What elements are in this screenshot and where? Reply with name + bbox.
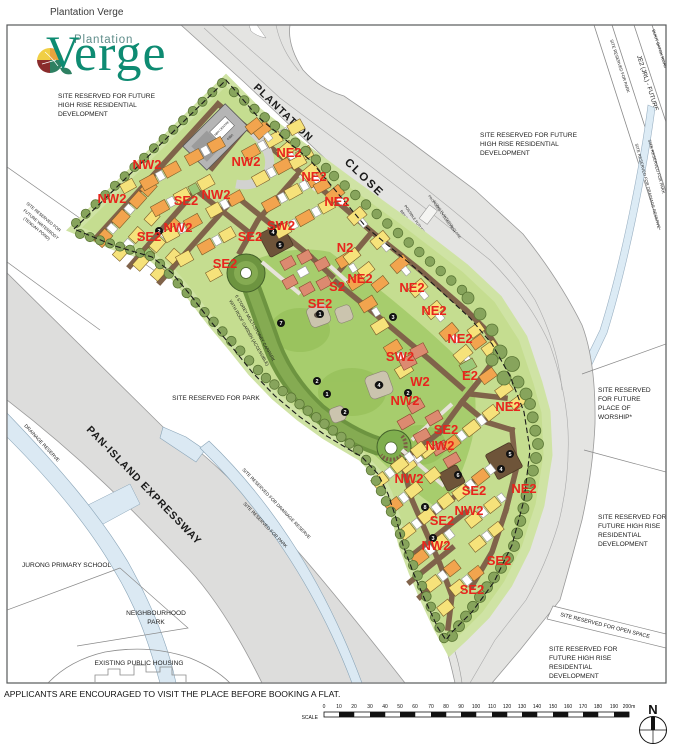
svg-text:N2: N2 [337,240,354,255]
svg-text:NE2: NE2 [399,280,424,295]
svg-text:SITE RESERVED FOR FUTURE: SITE RESERVED FOR FUTURE [480,132,578,139]
svg-text:SW2: SW2 [267,218,295,233]
svg-text:NE2: NE2 [511,481,536,496]
svg-text:NW2: NW2 [133,157,162,172]
svg-text:NW2: NW2 [391,393,420,408]
svg-text:NW2: NW2 [422,538,451,553]
svg-text:JURONG PRIMARY SCHOOL: JURONG PRIMARY SCHOOL [22,562,111,569]
svg-text:NW2: NW2 [232,154,261,169]
svg-text:FUTURE HIGH RISE: FUTURE HIGH RISE [549,655,612,662]
svg-text:SE2: SE2 [137,229,162,244]
svg-text:140: 140 [533,704,542,710]
svg-text:190: 190 [610,704,619,710]
svg-text:60: 60 [412,704,418,710]
svg-text:SE2: SE2 [487,553,512,568]
svg-text:3: 3 [391,315,394,321]
svg-text:NW2: NW2 [426,438,455,453]
svg-text:2: 2 [315,379,318,385]
svg-text:NW2: NW2 [395,471,424,486]
svg-text:SITE RESERVED FOR FUTURE: SITE RESERVED FOR FUTURE [58,93,156,100]
svg-text:70: 70 [428,704,434,710]
svg-text:DEVELOPMENT: DEVELOPMENT [549,673,599,680]
svg-text:DEVELOPMENT: DEVELOPMENT [598,541,648,548]
svg-text:RESIDENTIAL: RESIDENTIAL [598,532,642,539]
svg-text:erge: erge [74,25,167,82]
svg-text:NW2: NW2 [202,187,231,202]
svg-text:5: 5 [508,452,511,458]
svg-text:FUTURE HIGH RISE: FUTURE HIGH RISE [598,523,661,530]
svg-text:EXISTING PUBLIC HOUSING: EXISTING PUBLIC HOUSING [94,660,183,667]
svg-text:130: 130 [518,704,527,710]
svg-text:PLACE OF: PLACE OF [598,405,631,412]
svg-text:40: 40 [382,704,388,710]
svg-text:NEIGHBOURHOOD: NEIGHBOURHOOD [126,610,186,617]
svg-text:SE2: SE2 [462,483,487,498]
svg-text:170: 170 [579,704,588,710]
svg-text:80: 80 [443,704,449,710]
svg-text:W2: W2 [410,374,430,389]
svg-text:S2: S2 [329,279,345,294]
svg-text:FOR FUTURE: FOR FUTURE [598,396,641,403]
svg-text:100: 100 [472,704,481,710]
svg-text:NW2: NW2 [98,191,127,206]
svg-text:180: 180 [594,704,603,710]
svg-text:SE2: SE2 [430,513,455,528]
svg-text:20: 20 [351,704,357,710]
svg-text:30: 30 [367,704,373,710]
svg-text:200m: 200m [623,704,636,710]
svg-text:SITE RESERVED: SITE RESERVED [598,387,651,394]
svg-text:PARK: PARK [147,619,165,626]
svg-text:SE2: SE2 [238,229,263,244]
svg-text:HIGH RISE RESIDENTIAL: HIGH RISE RESIDENTIAL [480,141,559,148]
svg-text:SCALE: SCALE [302,715,319,721]
svg-text:NE2: NE2 [347,271,372,286]
svg-text:NE2: NE2 [324,194,349,209]
svg-text:SITE RESERVED FOR: SITE RESERVED FOR [549,646,618,653]
svg-text:N: N [648,702,657,717]
svg-text:NE2: NE2 [301,169,326,184]
svg-text:2: 2 [343,410,346,416]
svg-text:160: 160 [564,704,573,710]
svg-text:NW2: NW2 [455,503,484,518]
svg-text:NE2: NE2 [495,399,520,414]
svg-text:90: 90 [458,704,464,710]
svg-text:SE2: SE2 [174,193,199,208]
svg-text:E2: E2 [462,368,478,383]
svg-text:7: 7 [279,321,282,327]
svg-text:RESIDENTIAL: RESIDENTIAL [549,664,593,671]
svg-text:1: 1 [318,312,321,318]
svg-text:SE2: SE2 [308,296,333,311]
svg-text:DEVELOPMENT: DEVELOPMENT [480,150,530,157]
svg-text:SE2: SE2 [460,582,485,597]
svg-text:HIGH RISE RESIDENTIAL: HIGH RISE RESIDENTIAL [58,102,137,109]
svg-text:SE2: SE2 [213,256,238,271]
svg-text:5: 5 [278,243,281,249]
svg-text:DEVELOPMENT: DEVELOPMENT [58,111,108,118]
svg-text:SE2: SE2 [434,422,459,437]
svg-text:110: 110 [488,704,496,710]
svg-text:Plantation Verge: Plantation Verge [50,7,124,18]
svg-text:50: 50 [397,704,403,710]
svg-text:WORSHIP*: WORSHIP* [598,414,633,421]
svg-text:NE2: NE2 [421,303,446,318]
svg-text:SITE RESERVED FOR: SITE RESERVED FOR [598,514,667,521]
svg-text:NW2: NW2 [164,220,193,235]
svg-text:10: 10 [336,704,342,710]
svg-text:APPLICANTS ARE ENCOURAGED TO V: APPLICANTS ARE ENCOURAGED TO VISIT THE P… [4,689,340,699]
svg-text:NE2: NE2 [276,145,301,160]
svg-text:120: 120 [503,704,512,710]
svg-text:0: 0 [323,704,326,710]
svg-text:SITE RESERVED FOR PARK: SITE RESERVED FOR PARK [172,395,260,402]
svg-text:1: 1 [325,392,328,398]
svg-text:150: 150 [549,704,558,710]
svg-text:NE2: NE2 [447,331,472,346]
svg-text:6: 6 [456,473,459,479]
svg-text:8: 8 [423,505,426,511]
svg-text:SW2: SW2 [386,349,414,364]
